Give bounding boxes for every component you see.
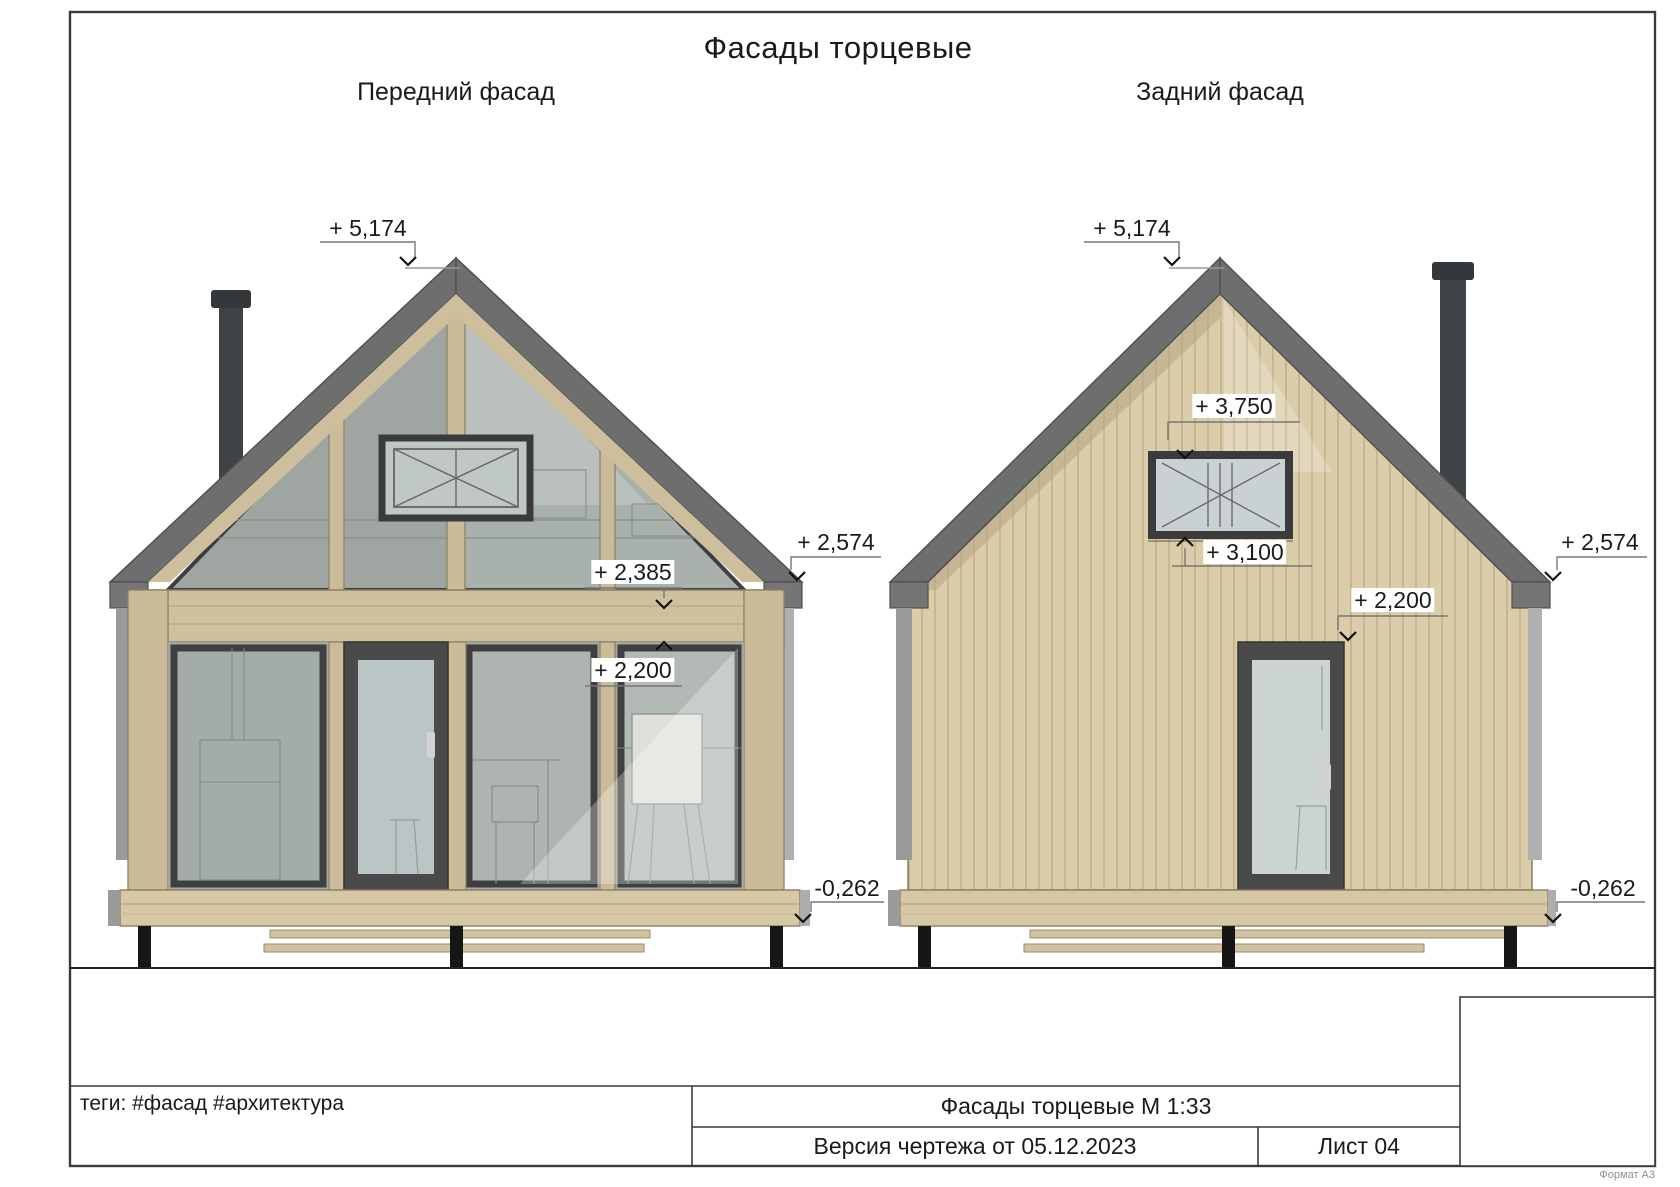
front-gable-window: [382, 438, 530, 518]
front-door-handle: [427, 732, 435, 758]
format-label: Формат А3: [1599, 1169, 1655, 1181]
rear-wall: [908, 292, 1532, 890]
elevation-rear-eave: + 2,574: [1558, 530, 1641, 554]
elevation-front-base: -0,262: [811, 876, 882, 900]
elevation-front-eave: + 2,574: [794, 530, 877, 554]
rear-left-roof-edge: [896, 608, 912, 860]
elevation-rear-door-top: + 2,200: [1351, 588, 1434, 612]
front-facade-label: Передний фасад: [357, 78, 555, 107]
elevation-rear-window-top: + 3,750: [1192, 394, 1275, 418]
front-right-corner: [744, 590, 784, 890]
rear-gable-window: [1148, 455, 1293, 541]
elevation-rear-peak: + 5,174: [1090, 216, 1173, 240]
version-cell: Версия чертежа от 05.12.2023: [814, 1133, 1137, 1160]
front-deck: [108, 890, 810, 968]
rear-right-roof-edge: [1528, 608, 1542, 860]
elevation-front-door-top: + 2,200: [591, 658, 674, 682]
front-left-corner: [128, 590, 168, 890]
front-door: [344, 642, 448, 890]
elevation-rear-base: -0,262: [1567, 876, 1638, 900]
rear-deck: [888, 890, 1556, 968]
tags-text: теги: #фасад #архитектура: [80, 1092, 344, 1116]
elevation-front-peak: + 5,174: [326, 216, 409, 240]
page-title: Фасады торцевые: [703, 30, 972, 66]
rear-door-handle: [1323, 764, 1331, 790]
rear-door: [1238, 642, 1344, 890]
elevation-rear-window-bottom: + 3,100: [1203, 540, 1286, 564]
sheet-cell: Лист 04: [1318, 1133, 1400, 1160]
rear-facade-drawing: [888, 258, 1556, 968]
rear-facade-label: Задний фасад: [1136, 78, 1304, 107]
front-transom: [128, 590, 784, 642]
drawing-title-cell: Фасады торцевые М 1:33: [941, 1093, 1212, 1120]
front-facade-drawing: [108, 258, 810, 968]
elevation-front-transom-top: + 2,385: [591, 560, 674, 584]
